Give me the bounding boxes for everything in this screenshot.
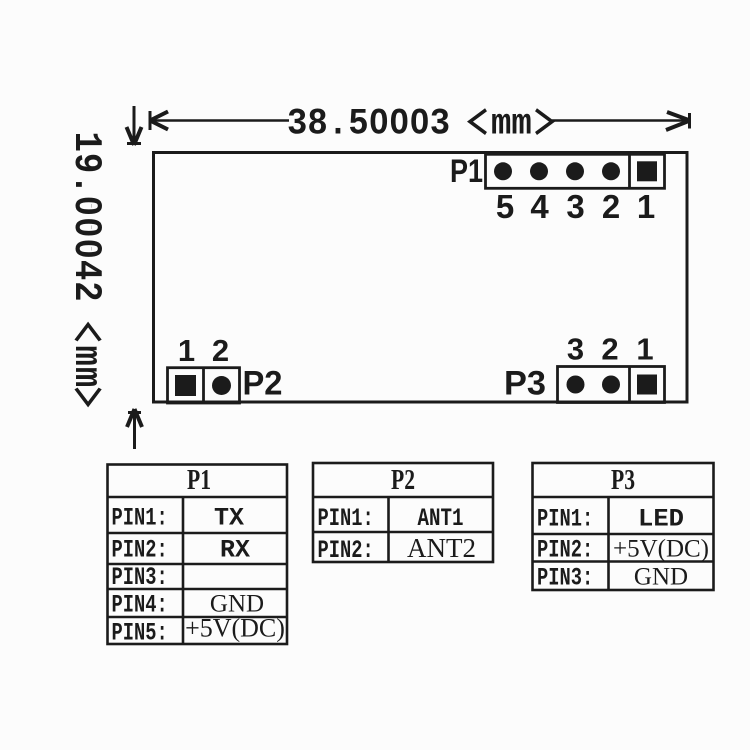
svg-text:2: 2 [212, 333, 229, 368]
svg-text:1: 1 [178, 333, 195, 368]
svg-text:+5V(DC): +5V(DC) [613, 536, 709, 563]
svg-text:4: 4 [530, 188, 549, 225]
svg-text:P2: P2 [391, 465, 415, 496]
svg-text:RX: RX [220, 536, 250, 565]
svg-text:P3: P3 [611, 465, 635, 496]
svg-text:PIN5:: PIN5: [112, 619, 168, 647]
svg-text:19.00042: 19.00042 [64, 132, 108, 303]
svg-text:ANT1: ANT1 [418, 504, 464, 533]
svg-text:2: 2 [601, 332, 618, 367]
svg-text:GND: GND [634, 564, 688, 591]
svg-text:2: 2 [602, 188, 620, 225]
svg-text:P1: P1 [187, 465, 211, 496]
svg-text:+5V(DC): +5V(DC) [185, 614, 285, 643]
svg-text:1: 1 [637, 188, 655, 225]
svg-text:1: 1 [636, 332, 653, 367]
svg-text:PIN1:: PIN1: [112, 504, 168, 532]
svg-text:5: 5 [496, 188, 514, 225]
svg-text:PIN3:: PIN3: [112, 564, 168, 592]
svg-text:P2: P2 [243, 365, 283, 403]
svg-text:PIN2:: PIN2: [112, 536, 168, 564]
svg-text:PIN3:: PIN3: [537, 564, 593, 592]
svg-text:PIN1:: PIN1: [318, 505, 374, 533]
svg-text:PIN2:: PIN2: [537, 536, 593, 564]
svg-text:3: 3 [566, 188, 584, 225]
svg-text:mm: mm [64, 346, 108, 389]
svg-text:ANT2: ANT2 [407, 533, 476, 563]
svg-text:P3: P3 [504, 365, 546, 403]
svg-text:PIN2:: PIN2: [318, 537, 374, 565]
svg-text:PIN4:: PIN4: [112, 591, 168, 619]
svg-text:LED: LED [638, 505, 684, 534]
svg-text:TX: TX [214, 504, 244, 533]
svg-text:P1: P1 [450, 153, 483, 189]
svg-text:mm: mm [491, 103, 532, 145]
svg-text:PIN1:: PIN1: [537, 505, 593, 533]
svg-text:38.50003: 38.50003 [287, 103, 450, 145]
svg-text:3: 3 [567, 332, 584, 367]
